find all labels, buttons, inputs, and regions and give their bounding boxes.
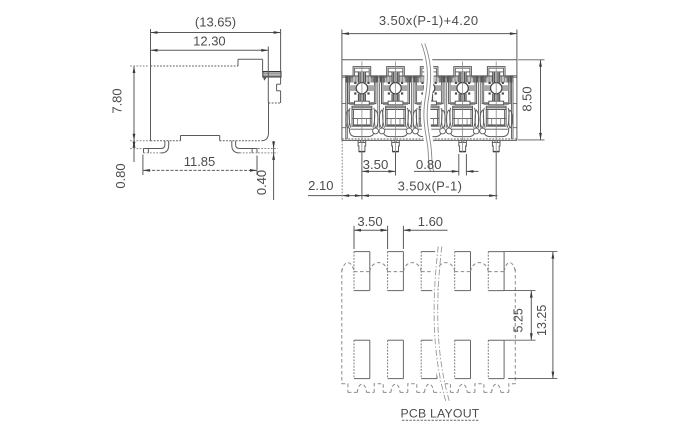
svg-text:3.50: 3.50 [363, 157, 389, 172]
svg-text:1.60: 1.60 [418, 214, 443, 229]
svg-text:0.80: 0.80 [416, 157, 442, 172]
svg-text:7.80: 7.80 [110, 88, 125, 113]
svg-text:3.50x(P-1): 3.50x(P-1) [398, 179, 463, 194]
svg-text:13.25: 13.25 [535, 305, 549, 336]
svg-text:5.25: 5.25 [512, 308, 526, 332]
svg-text:(13.65): (13.65) [195, 15, 236, 30]
svg-text:8.50: 8.50 [520, 86, 535, 111]
svg-text:2.10: 2.10 [308, 178, 333, 193]
svg-text:3.50x(P-1)+4.20: 3.50x(P-1)+4.20 [379, 13, 479, 28]
svg-text:0.40: 0.40 [254, 170, 269, 195]
svg-text:PCB LAYOUT: PCB LAYOUT [401, 407, 480, 421]
svg-text:12.30: 12.30 [193, 34, 226, 49]
svg-text:0.80: 0.80 [113, 163, 128, 188]
svg-text:3.50: 3.50 [357, 214, 382, 229]
svg-text:11.85: 11.85 [184, 154, 216, 169]
